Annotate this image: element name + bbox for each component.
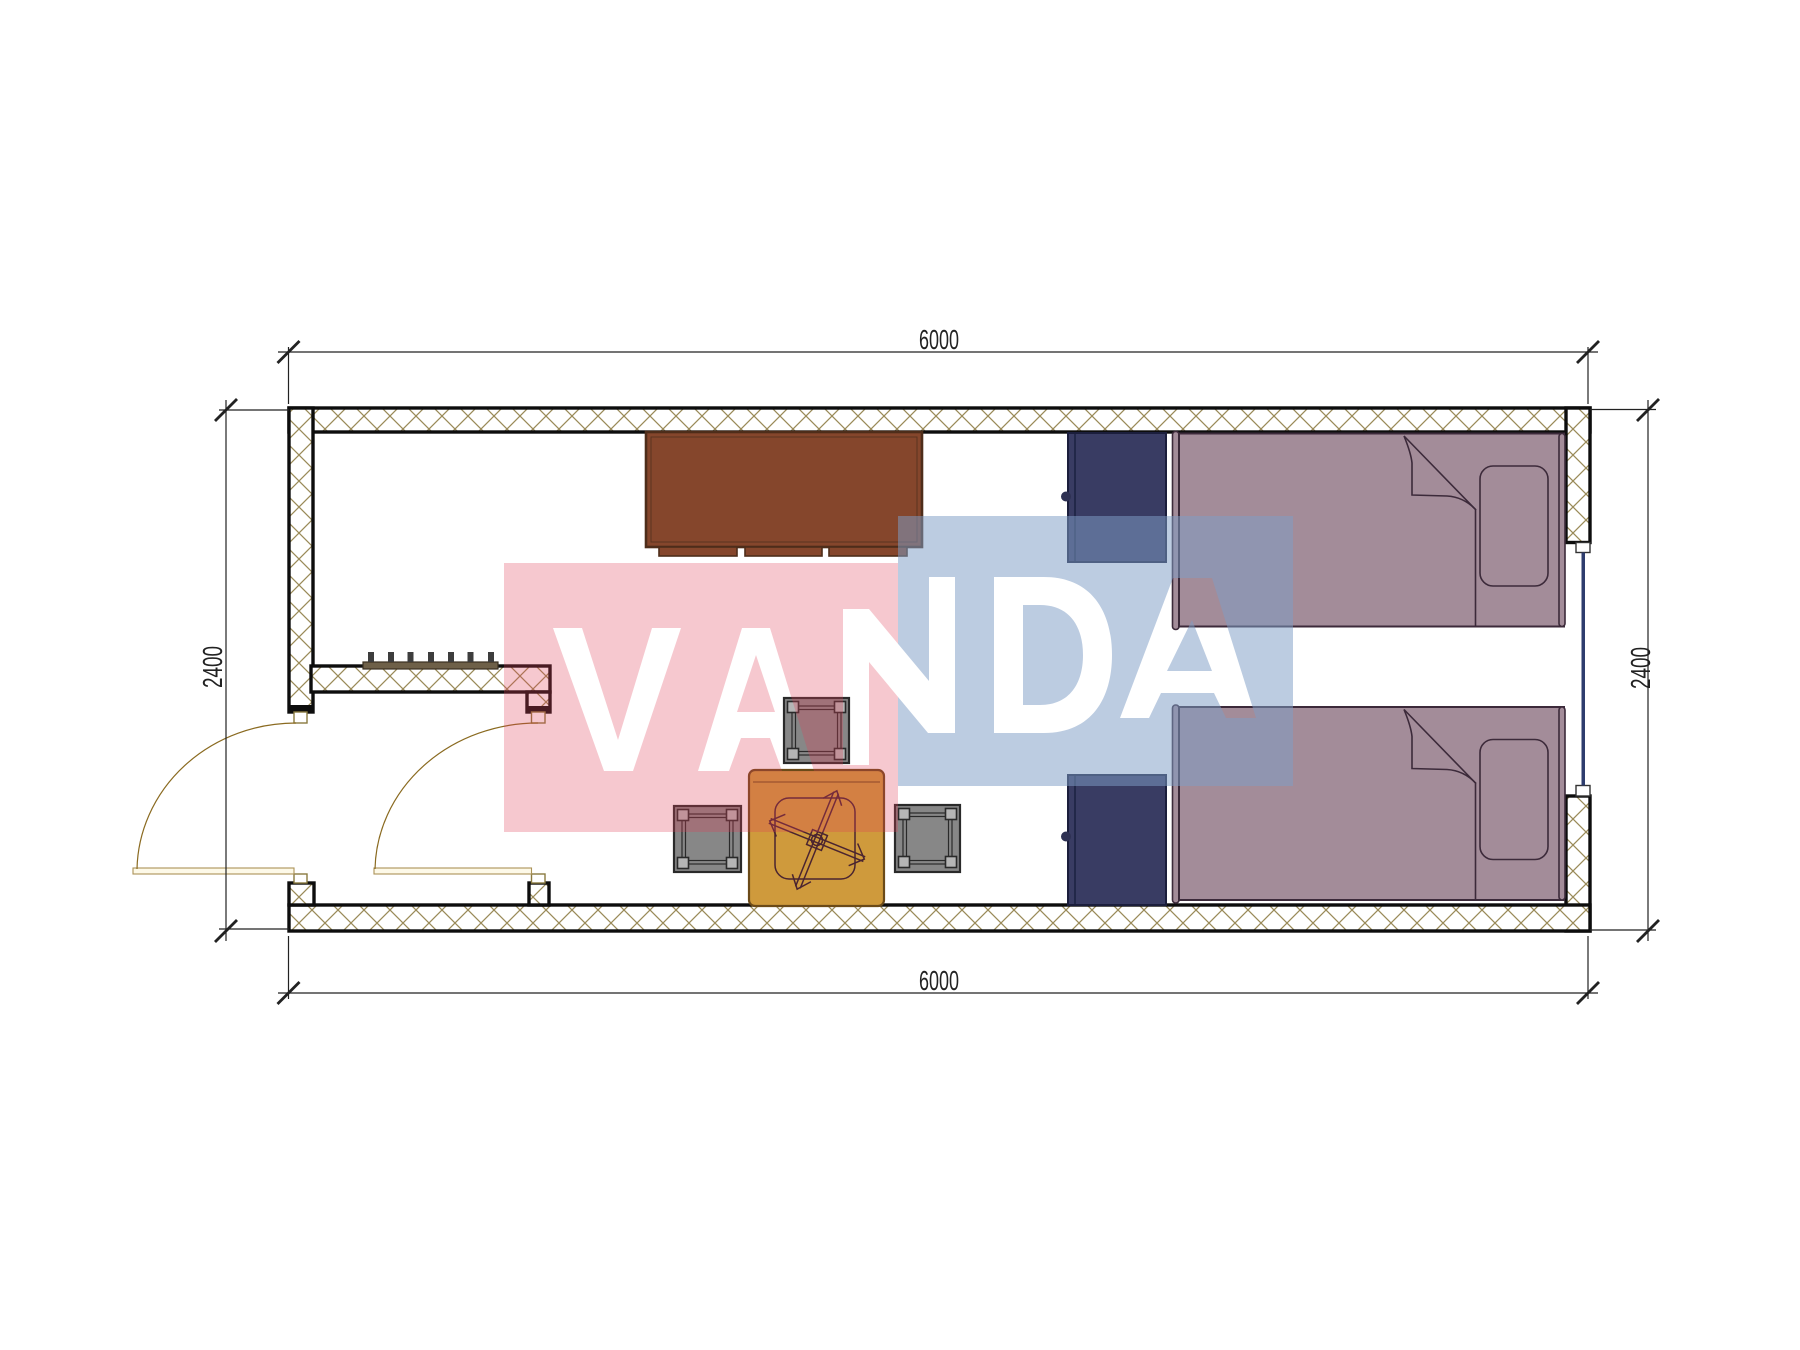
svg-text:2400: 2400 bbox=[1625, 647, 1656, 689]
svg-text:2400: 2400 bbox=[197, 646, 228, 688]
svg-text:6000: 6000 bbox=[919, 324, 959, 355]
svg-text:6000: 6000 bbox=[919, 965, 959, 996]
